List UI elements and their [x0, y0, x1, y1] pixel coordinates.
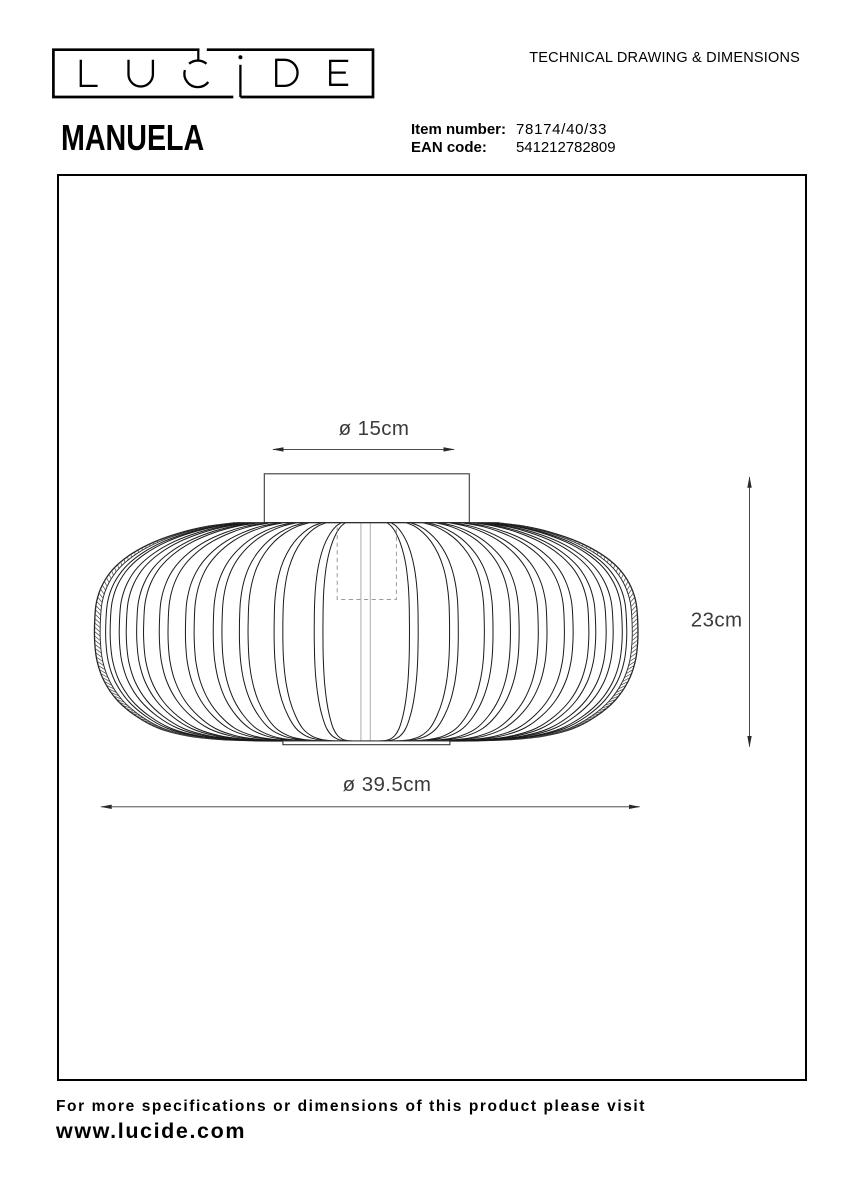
svg-text:ø 39.5cm: ø 39.5cm: [343, 773, 432, 796]
svg-text:ø 15cm: ø 15cm: [339, 417, 410, 440]
svg-text:23cm: 23cm: [691, 609, 743, 632]
